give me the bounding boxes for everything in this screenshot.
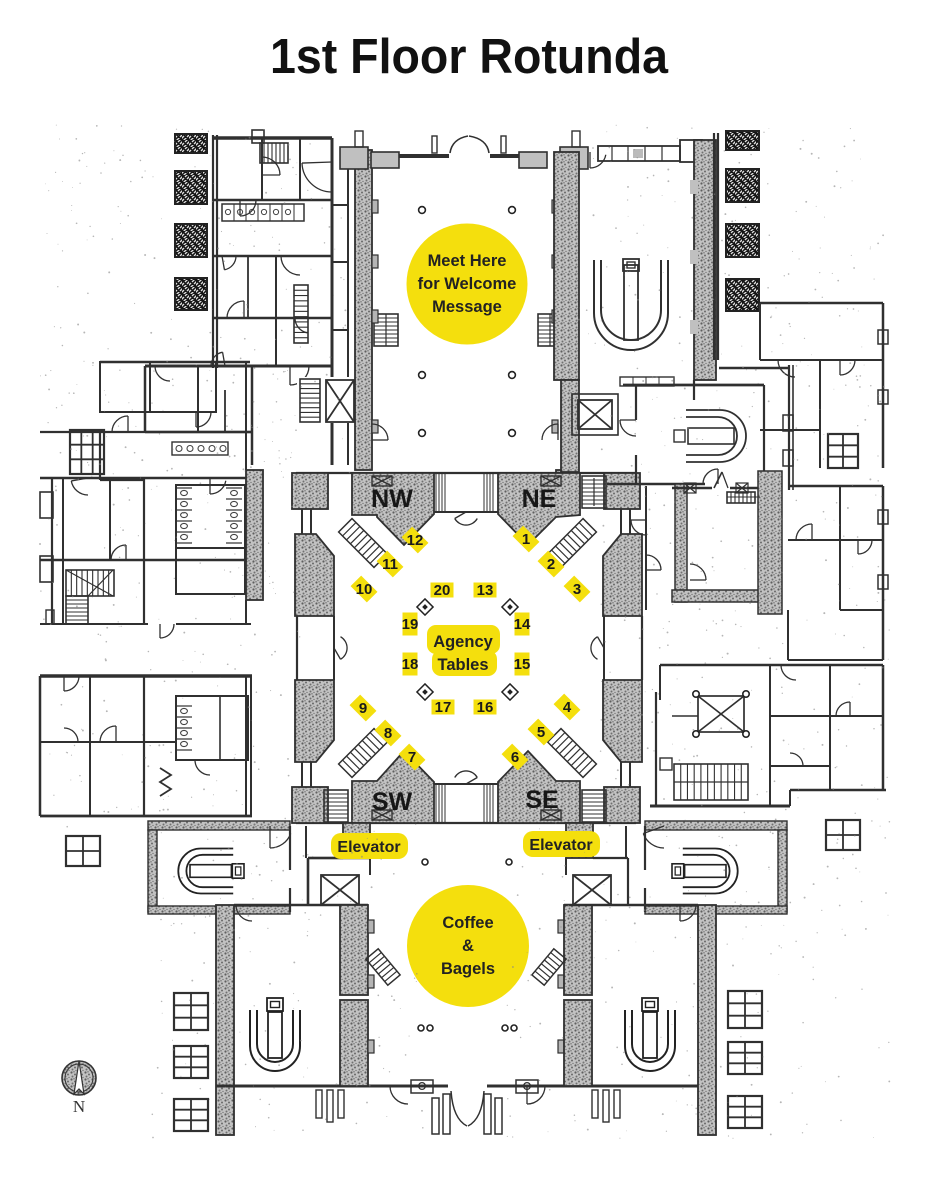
svg-text:N: N <box>73 1097 85 1116</box>
svg-text:7: 7 <box>408 749 416 766</box>
svg-text:6: 6 <box>511 749 519 766</box>
svg-text:SW: SW <box>372 788 413 816</box>
svg-text:16: 16 <box>477 699 494 716</box>
svg-text:Message: Message <box>432 298 502 316</box>
svg-text:NE: NE <box>522 485 557 513</box>
svg-text:15: 15 <box>514 656 531 673</box>
svg-text:8: 8 <box>384 725 392 742</box>
svg-text:12: 12 <box>407 532 424 549</box>
svg-text:Meet Here: Meet Here <box>428 252 507 270</box>
svg-text:Elevator: Elevator <box>529 837 592 854</box>
svg-text:13: 13 <box>477 582 494 599</box>
svg-text:10: 10 <box>356 581 373 598</box>
svg-text:for Welcome: for Welcome <box>418 275 517 293</box>
svg-text:11: 11 <box>382 556 398 573</box>
svg-text:14: 14 <box>514 616 531 633</box>
svg-text:SE: SE <box>525 786 558 814</box>
svg-text:3: 3 <box>573 581 581 598</box>
svg-text:&: & <box>462 937 474 955</box>
svg-text:Bagels: Bagels <box>441 960 495 978</box>
svg-text:NW: NW <box>371 485 413 513</box>
svg-text:1st Floor Rotunda: 1st Floor Rotunda <box>270 30 669 84</box>
svg-text:4: 4 <box>563 699 572 716</box>
svg-text:1: 1 <box>522 531 530 548</box>
svg-text:9: 9 <box>359 700 367 717</box>
svg-text:Tables: Tables <box>437 656 488 674</box>
svg-text:20: 20 <box>434 582 451 599</box>
svg-text:18: 18 <box>402 656 419 673</box>
svg-text:17: 17 <box>435 699 452 716</box>
svg-text:19: 19 <box>402 616 419 633</box>
svg-text:Coffee: Coffee <box>442 914 493 932</box>
svg-text:Elevator: Elevator <box>337 839 400 856</box>
svg-text:2: 2 <box>547 556 555 573</box>
svg-text:Agency: Agency <box>433 633 493 651</box>
svg-text:5: 5 <box>537 724 545 741</box>
